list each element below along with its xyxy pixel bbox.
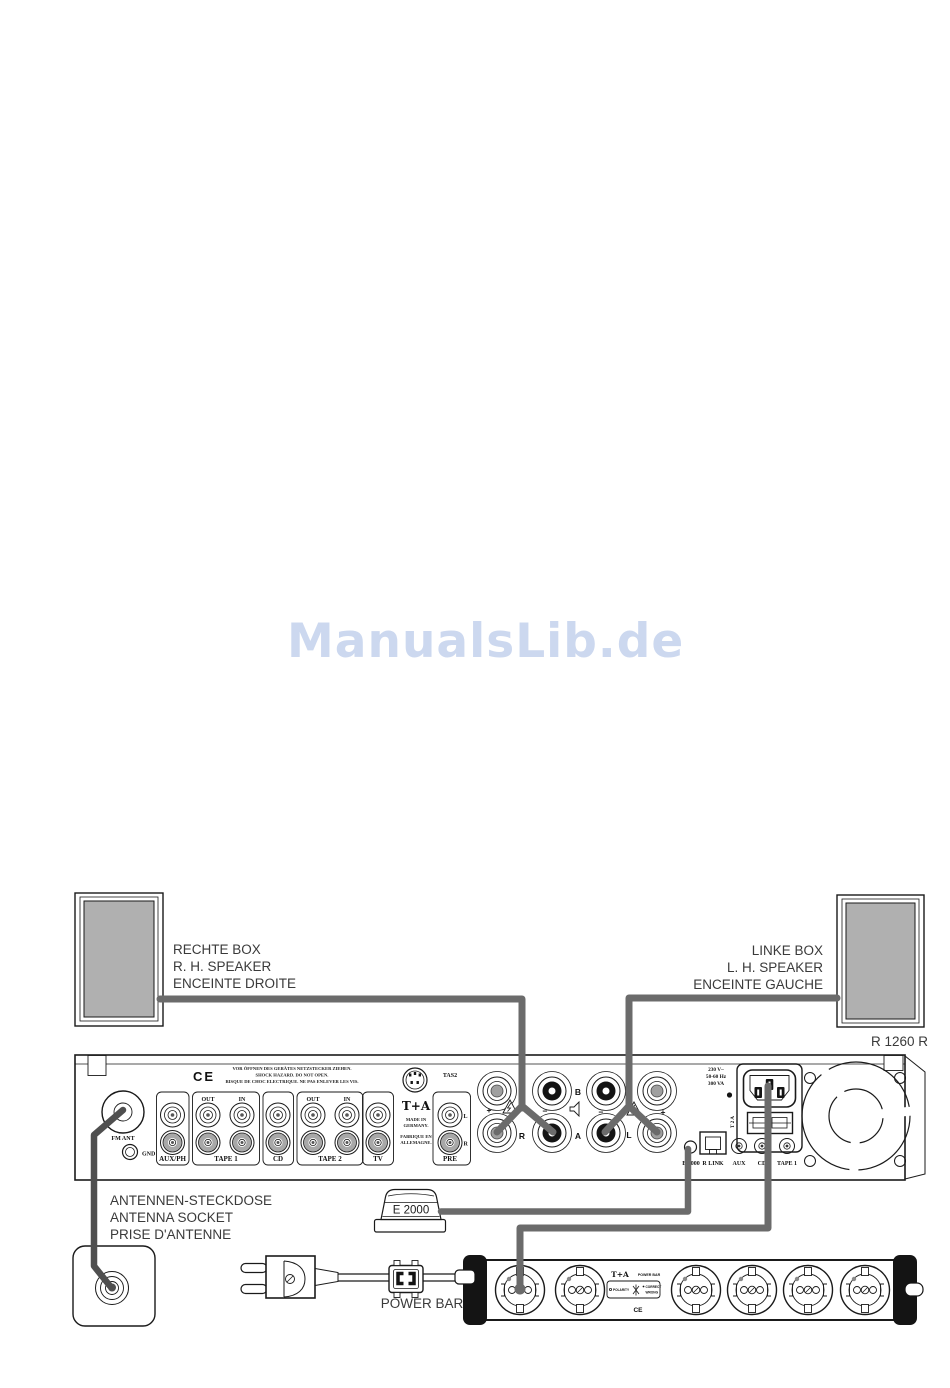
tv-label: TV bbox=[373, 1155, 383, 1163]
right-speaker-label: RECHTE BOX bbox=[173, 942, 261, 957]
fuse-rating-label: T 2 A bbox=[730, 1116, 736, 1128]
plus-label: + bbox=[661, 1107, 666, 1117]
right-speaker-box bbox=[75, 893, 163, 1026]
pre-r-label: R bbox=[464, 1142, 469, 1148]
terminal-a-label: A bbox=[575, 1131, 581, 1141]
warning-line: SHOCK HAZARD. DO NOT OPEN. bbox=[256, 1073, 329, 1078]
power-bar-socket bbox=[556, 1266, 605, 1315]
pre-l-label: L bbox=[464, 1114, 468, 1120]
panel-perspective-edge bbox=[905, 1056, 925, 1179]
polarity-wrong-label: WRONG bbox=[646, 1291, 659, 1295]
warning-line: RISQUE DE CHOC ELECTRIQUE. NE PAS ENLEVE… bbox=[225, 1079, 358, 1084]
terminal-l-label: L bbox=[626, 1130, 631, 1140]
in-label: IN bbox=[239, 1097, 246, 1103]
aux-ph-label: AUX/PH bbox=[159, 1155, 186, 1163]
rear-panel: CE VOR ÖFFNEN DES GERÄTES NETZSTECKER ZI… bbox=[75, 1055, 925, 1180]
in-label: IN bbox=[344, 1097, 351, 1103]
power-bar-socket bbox=[672, 1266, 721, 1315]
antenna-label: PRISE D'ANTENNE bbox=[110, 1227, 231, 1242]
tape1-mini-label: TAPE 1 bbox=[777, 1161, 797, 1167]
fabrique-label: ALLEMAGNE. bbox=[400, 1140, 431, 1145]
plus-label: + bbox=[487, 1105, 492, 1115]
warning-line: VOR ÖFFNEN DES GERÄTES NETZSTECKER ZIEHE… bbox=[232, 1066, 351, 1071]
polarity-label: POLARITY bbox=[613, 1288, 630, 1292]
terminal-r-label: R bbox=[519, 1131, 525, 1141]
model-label: R 1260 R bbox=[871, 1034, 928, 1049]
r-link-label: R LINK bbox=[702, 1161, 724, 1167]
power-bar-brand: T+A bbox=[611, 1270, 629, 1279]
antenna-label: ANTENNEN-STECKDOSE bbox=[110, 1193, 272, 1208]
aux-mini-label: AUX bbox=[733, 1161, 747, 1167]
polarity-correct-label: CORRECT bbox=[646, 1285, 662, 1289]
minus-label: − bbox=[543, 1106, 548, 1116]
wiring-diagram: ManualsLib.de RECHTE BOX R. H. SPEAKER E… bbox=[0, 0, 950, 1388]
manual-page: ManualsLib.de RECHTE BOX R. H. SPEAKER E… bbox=[0, 0, 950, 1388]
tape1-label: TAPE 1 bbox=[214, 1155, 238, 1163]
power-bar-socket bbox=[784, 1266, 833, 1315]
made-in-label: MADE IN bbox=[406, 1117, 427, 1122]
mains-plug-tip bbox=[515, 1284, 526, 1295]
power-rating-line: 300 VA bbox=[708, 1081, 724, 1087]
right-speaker-label: ENCEINTE DROITE bbox=[173, 976, 296, 991]
terminal-b-label: B bbox=[575, 1087, 581, 1097]
fm-ant-label: FM ANT bbox=[111, 1136, 134, 1142]
watermark-text: ManualsLib.de bbox=[287, 614, 684, 669]
antenna-plug bbox=[108, 1284, 116, 1292]
power-bar-socket bbox=[728, 1266, 777, 1315]
e2000-box-label: E 2000 bbox=[393, 1205, 429, 1217]
power-rating-line: 50-60 Hz bbox=[706, 1074, 727, 1080]
cd-label: CD bbox=[273, 1155, 283, 1163]
left-speaker-label: L. H. SPEAKER bbox=[727, 960, 823, 975]
tas2-label: TAS2 bbox=[443, 1073, 457, 1079]
out-label: OUT bbox=[306, 1097, 319, 1103]
fabrique-label: FABRIQUE EN bbox=[400, 1134, 432, 1139]
power-bar-socket bbox=[841, 1266, 890, 1315]
tape2-label: TAPE 2 bbox=[318, 1155, 342, 1163]
out-label: OUT bbox=[201, 1097, 214, 1103]
antenna-label: ANTENNA SOCKET bbox=[110, 1210, 233, 1225]
mains-plug bbox=[241, 1256, 338, 1298]
power-rating-line: 230 V~ bbox=[708, 1067, 724, 1073]
minus-label: − bbox=[599, 1107, 604, 1117]
ce-mark: CE bbox=[193, 1069, 215, 1084]
brand-logo: T+A bbox=[402, 1099, 431, 1113]
iec-coupler bbox=[389, 1261, 423, 1298]
left-speaker-box bbox=[837, 895, 924, 1027]
power-bar-ce: CE bbox=[633, 1307, 643, 1314]
gnd-label: GND bbox=[142, 1152, 156, 1158]
made-in-label: GERMANY. bbox=[404, 1123, 429, 1128]
power-bar-caption: POWER BAR bbox=[381, 1296, 464, 1311]
right-speaker-label: R. H. SPEAKER bbox=[173, 959, 272, 974]
left-speaker-label: ENCEINTE GAUCHE bbox=[693, 977, 823, 992]
pre-label: PRE bbox=[443, 1155, 457, 1163]
left-speaker-label: LINKE BOX bbox=[752, 943, 823, 958]
power-bar-name: POWER BAR bbox=[638, 1273, 661, 1277]
